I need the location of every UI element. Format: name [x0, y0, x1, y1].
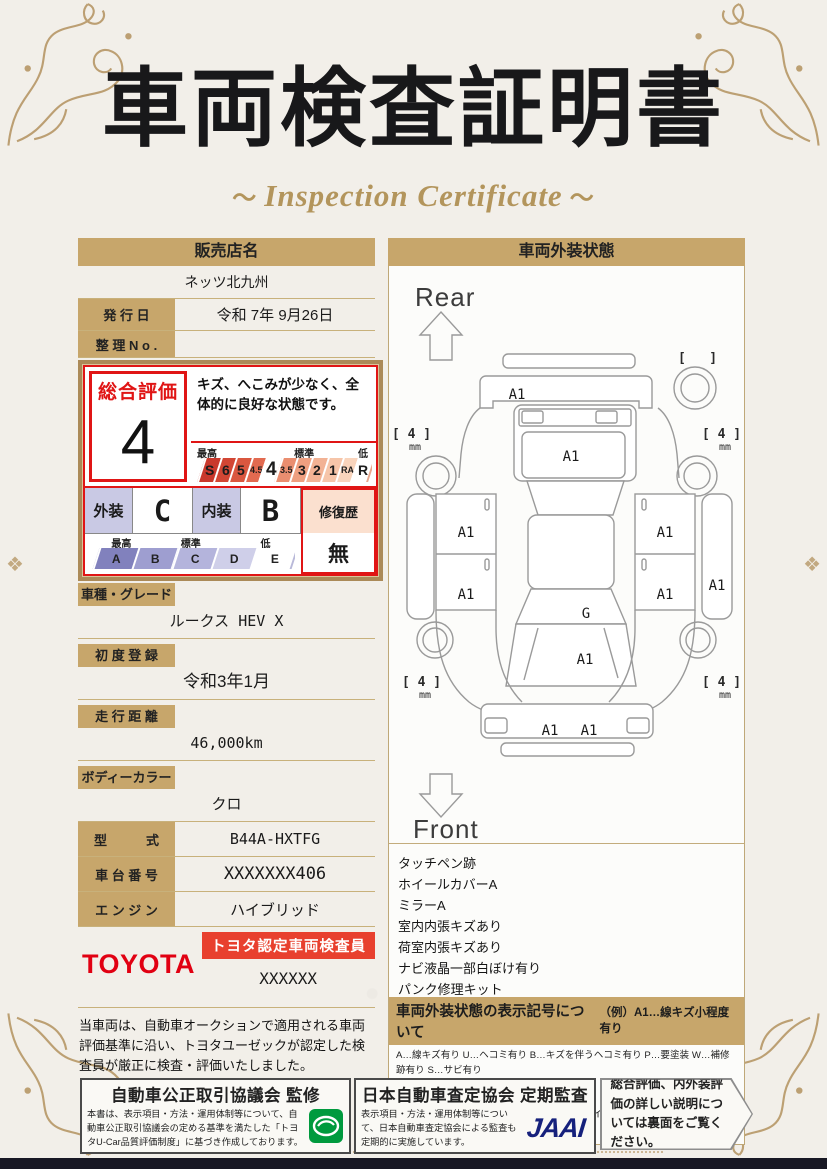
svg-text:[ 4 ]: [ 4 ] [702, 675, 741, 690]
roof-shape [528, 515, 614, 589]
certificate-page: 車両検査証明書 Inspection Certificate 販売店名 ネッツ北… [0, 0, 827, 1169]
grade-cell: D [211, 548, 257, 569]
legend-line: A…線キズ有り U…ヘコミ有り B…キズを伴うヘコミ有り P…要塗装 W…補修跡… [396, 1049, 737, 1079]
svg-text:mm: mm [419, 690, 431, 701]
legend-title: 車両外装状態の表示記号について [396, 1000, 591, 1042]
edge-ornament [6, 552, 24, 577]
car-diagram-svg: Rear [ ] A1 [389, 266, 744, 843]
detail-value: B44A-HXTFG [175, 822, 375, 856]
repair-history-box: 修復歴 無 [301, 488, 376, 574]
detail-row-engine: エ ン ジ ン ハイブリッド [78, 892, 375, 927]
mark-windshield: G [582, 606, 590, 622]
mark-hood: A1 [577, 652, 594, 668]
detail-row-model-code: 型 式 B44A-HXTFG [78, 822, 375, 857]
detail-value: ハイブリッド [175, 892, 375, 926]
dealer-name: ネッツ北九州 [78, 266, 375, 299]
detail-label: 車種・グレード [78, 583, 175, 606]
edge-ornament [803, 552, 821, 577]
right-quarter-line [658, 408, 679, 478]
detail-value: クロ [78, 789, 375, 819]
vehicle-details: 車種・グレード ルークス HEV X 初 度 登 録 令和3年1月 走 行 距 … [78, 578, 375, 1076]
exterior-condition-header: 車両外装状態 [388, 238, 745, 266]
overall-rating-box: 総合評価 4 [89, 371, 187, 482]
windshield-shape [516, 589, 626, 624]
repair-history-value: 無 [303, 533, 374, 572]
exterior-condition-column: 車両外装状態 Rear [ ] [388, 238, 745, 1145]
detail-label: ボディーカラー [78, 766, 175, 789]
detail-label: 車 台 番 号 [78, 857, 175, 891]
front-arrow-icon [420, 774, 462, 817]
mark-right-front-door: A1 [657, 587, 674, 603]
note-item: 荷室内張キズあり [398, 937, 744, 958]
tire-depth-front-right: [ 4 ] mm [702, 675, 741, 701]
mark-left-front-door: A1 [458, 587, 475, 603]
jaai-title: 日本自動車査定協会 定期監査 [356, 1080, 594, 1106]
detail-row-model: 車種・グレード ルークス HEV X [78, 578, 375, 639]
rear-arrow-icon [420, 312, 462, 360]
detail-value: XXXXXXX406 [175, 857, 375, 891]
detail-value: 46,000km [78, 728, 375, 758]
certified-inspector-badge: トヨタ認定車両検査員 [202, 932, 375, 959]
note-item: ナビ液晶一部白ぼけ有り [398, 958, 744, 979]
bottom-dark-strip [0, 1158, 827, 1169]
certification-statement: 当車両は、自動車オークションで適用される車両評価基準に沿い、トヨタユーゼックが認… [78, 1007, 375, 1076]
tire-depth-rear-left: [ 4 ] mm [392, 427, 431, 453]
overall-rating-scale: 最高 標準 低 S 6 5 4.5 4 3.5 3 2 [191, 441, 376, 486]
interior-grade: B [241, 488, 301, 533]
detail-row-mileage: 走 行 距 離 46,000km [78, 700, 375, 761]
detail-label: 初 度 登 録 [78, 644, 175, 667]
rear-direction-label: Rear [415, 282, 475, 312]
detail-row-chassis-number: 車 台 番 号 XXXXXXX406 [78, 857, 375, 892]
tire-depth-front-left: [ 4 ] mm [402, 675, 441, 701]
spare-tire-bracket: [ ] [678, 351, 717, 366]
rear-window-shape [527, 481, 624, 515]
mark-right-side: A1 [709, 578, 726, 594]
mark-right-rear-door: A1 [657, 525, 674, 541]
roof-edge-strip [503, 354, 635, 368]
front-edge-strip [501, 743, 634, 756]
inspector-name: XXXXXX [259, 969, 317, 988]
right-side-sill [702, 494, 732, 619]
inspector-block: TOYOTA トヨタ認定車両検査員 XXXXXX [78, 927, 375, 1007]
svg-text:mm: mm [719, 690, 731, 701]
jaai-body: 表示項目・方法・運用体制等について、日本自動車査定協会による監査も定期的に実施し… [361, 1108, 522, 1149]
mark-front-bumper-left: A1 [542, 723, 559, 739]
fair-trade-body: 本書は、表示項目・方法・運用体制等について、自動車公正取引協議会の定める基準を満… [87, 1108, 303, 1149]
green-seal-icon [308, 1108, 344, 1149]
exterior-grade: C [133, 488, 193, 533]
repair-history-label: 修復歴 [303, 490, 374, 533]
mark-left-rear-door: A1 [458, 525, 475, 541]
svg-text:[ 4 ]: [ 4 ] [392, 427, 431, 442]
grade-cell: B [132, 548, 178, 569]
mark-rear-bumper: A1 [509, 387, 526, 403]
detail-label: エ ン ジ ン [78, 892, 175, 926]
fair-trade-title: 自動車公正取引協議会 監修 [82, 1080, 349, 1106]
ref-no-value [175, 331, 375, 357]
legend-example: （例）A1…線キズ小程度有り [599, 1004, 737, 1036]
page-subtitle: Inspection Certificate [0, 178, 827, 214]
toyota-logo: TOYOTA [82, 949, 195, 980]
exterior-label: 外装 [85, 488, 133, 533]
note-item: ホイールカバーA [398, 874, 744, 895]
interior-label: 内装 [193, 488, 241, 533]
rear-gate-shape [514, 405, 636, 481]
left-quarter-line [459, 408, 480, 478]
condition-notes: タッチペン跡 ホイールカバーA ミラーA 室内内張キズあり 荷室内張キズあり ナ… [389, 843, 744, 997]
svg-text:mm: mm [719, 442, 731, 453]
fair-trade-council-box: 自動車公正取引協議会 監修 本書は、表示項目・方法・運用体制等について、自動車公… [80, 1078, 351, 1154]
svg-text:[ 4 ]: [ 4 ] [702, 427, 741, 442]
issue-date-label: 発 行 日 [78, 299, 175, 330]
issue-date-row: 発 行 日 令和 7年 9月26日 [78, 299, 375, 331]
rear-bumper-shape [480, 376, 652, 408]
detail-row-body-color: ボディーカラー クロ [78, 761, 375, 822]
grade-scale: 最高 標準 低 A B C D E [85, 534, 301, 574]
detail-value: 令和3年1月 [78, 667, 375, 697]
dealer-block: 販売店名 ネッツ北九州 発 行 日 令和 7年 9月26日 整 理 N o . [78, 238, 375, 358]
note-item: 室内内張キズあり [398, 916, 744, 937]
left-side-sill [407, 494, 434, 619]
evaluation-block: 総合評価 4 キズ、へこみが少なく、全体的に良好な状態です。 最高 標準 低 S… [78, 360, 383, 581]
detail-label: 型 式 [78, 822, 175, 856]
tire-depth-rear-right: [ 4 ] mm [702, 427, 741, 453]
jaai-logo: JAAI [526, 1113, 591, 1144]
dealer-header: 販売店名 [78, 238, 375, 266]
detail-row-first-registration: 初 度 登 録 令和3年1月 [78, 639, 375, 700]
back-page-note-box: 総合評価、内外装評価の詳しい説明については裏面をご覧ください。 [600, 1078, 753, 1150]
front-direction-label: Front [413, 814, 479, 843]
page-title: 車両検査証明書 [0, 62, 827, 157]
rating-comment: キズ、へこみが少なく、全体的に良好な状態です。 [191, 367, 376, 441]
back-page-note: 総合評価、内外装評価の詳しい説明については裏面をご覧ください。 [602, 1075, 752, 1153]
note-item: タッチペン跡 [398, 853, 744, 874]
svg-text:[ 4 ]: [ 4 ] [402, 675, 441, 690]
car-diagram: Rear [ ] A1 [389, 266, 744, 843]
mark-front-bumper-right: A1 [581, 723, 598, 739]
note-item: ミラーA [398, 895, 744, 916]
overall-rating-value: 4 [92, 404, 184, 482]
ref-no-label: 整 理 N o . [78, 331, 175, 357]
grade-cell: E [250, 548, 295, 569]
overall-rating-label: 総合評価 [92, 374, 184, 404]
ref-no-row: 整 理 N o . [78, 331, 375, 358]
detail-label: 走 行 距 離 [78, 705, 175, 728]
mark-rear-gate: A1 [563, 449, 580, 465]
detail-value: ルークス HEV X [78, 606, 375, 636]
jaai-audit-box: 日本自動車査定協会 定期監査 表示項目・方法・運用体制等について、日本自動車査定… [354, 1078, 596, 1154]
svg-text:mm: mm [409, 442, 421, 453]
issue-date-value: 令和 7年 9月26日 [175, 299, 375, 330]
